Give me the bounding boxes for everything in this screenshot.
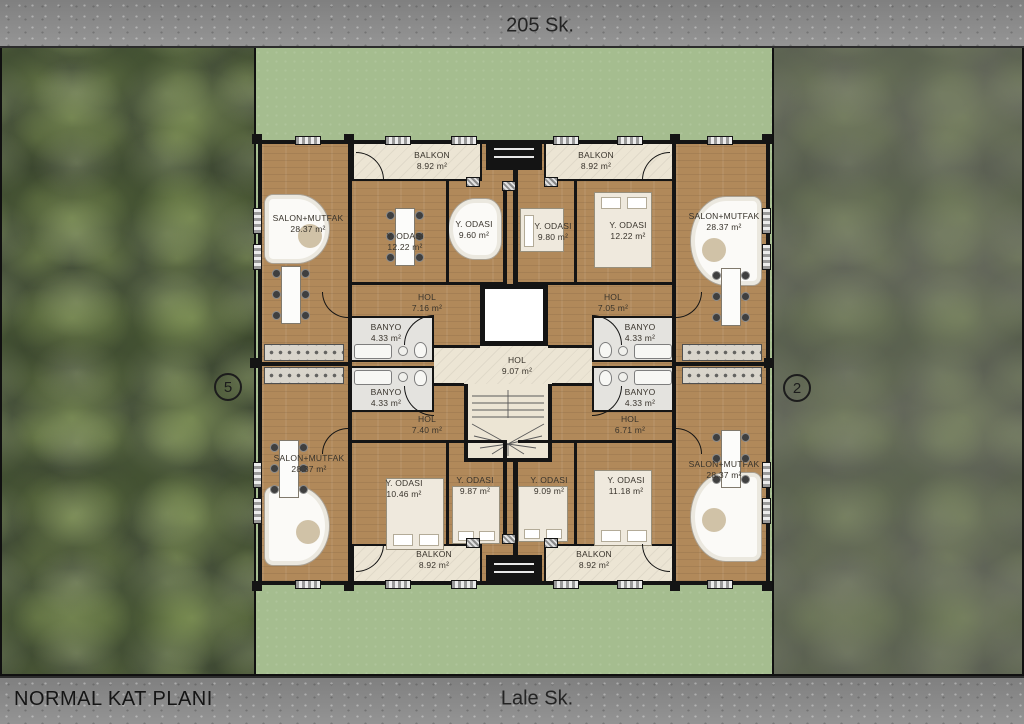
wall <box>574 181 577 284</box>
plot-marker-left: 5 <box>214 373 242 401</box>
room-name: Y. ODASI <box>456 475 493 486</box>
kitchen-counter-top-right <box>682 344 762 361</box>
column-marker <box>762 134 772 144</box>
wall <box>434 383 464 386</box>
window-marker <box>385 580 411 589</box>
wall <box>446 441 449 544</box>
column-marker <box>670 134 680 144</box>
room-area: 7.05 m² <box>598 303 628 314</box>
room-name: Y. ODASI <box>385 478 422 489</box>
wall <box>258 362 350 366</box>
room-label-salon-bottom-right: SALON+MUTFAK28.37 m² <box>689 459 760 481</box>
plot-marker-right: 2 <box>783 374 811 402</box>
dining-table <box>274 264 308 326</box>
room-label-oda-bottom-left-mid: Y. ODASI10.46 m² <box>385 478 422 500</box>
rug <box>296 520 320 544</box>
room-name: Y. ODASI <box>534 221 571 232</box>
toilet <box>414 370 427 386</box>
room-area: 8.92 m² <box>578 161 614 172</box>
room-name: BALKON <box>578 150 614 161</box>
room-name: BANYO <box>625 387 656 398</box>
column-marker <box>670 581 680 591</box>
forest-left <box>0 46 256 676</box>
room-name: SALON+MUTFAK <box>689 211 760 222</box>
room-label-hol-bottom-left: HOL7.40 m² <box>412 414 442 436</box>
wall <box>446 181 449 284</box>
sink <box>618 372 628 382</box>
room-area: 4.33 m² <box>625 333 656 344</box>
window-marker <box>295 136 321 145</box>
room-label-banyo-bottom-right: BANYO4.33 m² <box>625 387 656 409</box>
room-area: 28.37 m² <box>273 224 344 235</box>
room-name: HOL <box>598 292 628 303</box>
window-marker <box>762 244 771 270</box>
room-area: 7.40 m² <box>412 425 442 436</box>
column-marker <box>252 581 262 591</box>
room-label-banyo-bottom-left: BANYO4.33 m² <box>371 387 402 409</box>
room-label-oda-bottom-left-inner: Y. ODASI9.87 m² <box>456 475 493 497</box>
room-label-balkon-bottom-left: BALKON8.92 m² <box>416 549 452 571</box>
room-name: BALKON <box>414 150 450 161</box>
room-name: Y. ODASI <box>455 219 492 230</box>
room-name: SALON+MUTFAK <box>273 213 344 224</box>
room-area: 6.71 m² <box>615 425 645 436</box>
room-name: SALON+MUTFAK <box>274 453 345 464</box>
column-marker <box>252 134 262 144</box>
room-label-oda-top-left-mid: Y. ODASI12.22 m² <box>386 231 423 253</box>
room-label-oda-top-right-mid: Y. ODASI12.22 m² <box>609 220 646 242</box>
room-area: 28.37 m² <box>274 464 345 475</box>
wall <box>350 282 507 285</box>
street-label-bottom: Lale Sk. <box>501 688 573 711</box>
wall <box>552 383 592 386</box>
room-area: 8.92 m² <box>416 560 452 571</box>
kitchen-counter-bottom-left <box>264 367 344 384</box>
room-area: 9.07 m² <box>502 366 532 377</box>
window-marker <box>707 580 733 589</box>
room-area: 9.09 m² <box>530 486 567 497</box>
column-marker <box>344 134 354 144</box>
room-label-hol-top-left: HOL7.16 m² <box>412 292 442 314</box>
window-marker <box>295 580 321 589</box>
wall <box>350 440 507 443</box>
room-area: 4.33 m² <box>625 398 656 409</box>
room-area: 12.22 m² <box>386 242 423 253</box>
window-marker <box>762 498 771 524</box>
room-label-hol-top-right: HOL7.05 m² <box>598 292 628 314</box>
room-area: 10.46 m² <box>385 489 422 500</box>
sink <box>618 346 628 356</box>
plan-title: NORMAL KAT PLANI <box>14 688 213 711</box>
room-area: 4.33 m² <box>371 398 402 409</box>
wall <box>548 345 592 348</box>
room-name: Y. ODASI <box>530 475 567 486</box>
hatched-column <box>544 177 558 187</box>
site-plan-canvas: 205 Sk. Lale Sk. NORMAL KAT PLANI 5 2 <box>0 0 1024 724</box>
room-label-salon-bottom-left: SALON+MUTFAK28.37 m² <box>274 453 345 475</box>
room-name: BALKON <box>576 549 612 560</box>
hatched-column <box>502 181 516 191</box>
kitchen-counter-top-left <box>264 344 344 361</box>
room-area: 4.33 m² <box>371 333 402 344</box>
room-area: 28.37 m² <box>689 222 760 233</box>
room-label-hol-bottom-right: HOL6.71 m² <box>615 414 645 436</box>
window-marker <box>253 498 262 524</box>
window-marker <box>451 136 477 145</box>
window-marker <box>762 462 771 488</box>
hatched-column <box>502 534 516 544</box>
room-area: 12.22 m² <box>609 231 646 242</box>
room-area: 9.87 m² <box>456 486 493 497</box>
window-marker <box>553 136 579 145</box>
window-marker <box>617 136 643 145</box>
window-marker <box>762 208 771 234</box>
room-name: HOL <box>502 355 532 366</box>
room-name: BANYO <box>371 322 402 333</box>
sink <box>398 346 408 356</box>
shaft-block-top <box>486 140 542 170</box>
room-name: Y. ODASI <box>607 475 644 486</box>
room-label-banyo-top-left: BANYO4.33 m² <box>371 322 402 344</box>
room-name: HOL <box>615 414 645 425</box>
column-marker <box>344 581 354 591</box>
room-name: BANYO <box>371 387 402 398</box>
wall <box>574 441 577 544</box>
room-area: 28.37 m² <box>689 470 760 481</box>
room-name: BALKON <box>416 549 452 560</box>
wall <box>434 345 480 348</box>
room-label-oda-bottom-right-inner: Y. ODASI9.09 m² <box>530 475 567 497</box>
room-name: Y. ODASI <box>609 220 646 231</box>
column-marker <box>764 358 774 368</box>
room-label-banyo-top-right: BANYO4.33 m² <box>625 322 656 344</box>
room-label-oda-bottom-right-mid: Y. ODASI11.18 m² <box>607 475 644 497</box>
window-marker <box>553 580 579 589</box>
wall <box>503 441 507 544</box>
wall <box>503 181 507 284</box>
rug <box>702 508 726 532</box>
hatched-column <box>466 177 480 187</box>
room-area: 7.16 m² <box>412 303 442 314</box>
elevator <box>480 284 548 346</box>
room-label-balkon-bottom-right: BALKON8.92 m² <box>576 549 612 571</box>
room-area: 8.92 m² <box>414 161 450 172</box>
sink <box>398 372 408 382</box>
window-marker <box>707 136 733 145</box>
room-label-hol-center: HOL9.07 m² <box>502 355 532 377</box>
stairs <box>468 388 548 458</box>
room-label-salon-top-right: SALON+MUTFAK28.37 m² <box>689 211 760 233</box>
bathtub <box>634 370 672 385</box>
window-marker <box>451 580 477 589</box>
kitchen-counter-bottom-right <box>682 367 762 384</box>
wall <box>518 282 674 285</box>
room-area: 9.60 m² <box>455 230 492 241</box>
room-label-balkon-top-right: BALKON8.92 m² <box>578 150 614 172</box>
window-marker <box>385 136 411 145</box>
room-area: 8.92 m² <box>576 560 612 571</box>
window-marker <box>253 462 262 488</box>
room-name: HOL <box>412 292 442 303</box>
bathtub <box>634 344 672 359</box>
dining-table <box>714 266 748 328</box>
room-name: Y. ODASI <box>386 231 423 242</box>
bathtub <box>354 370 392 385</box>
hatched-column <box>544 538 558 548</box>
shaft-block-bottom <box>486 555 542 585</box>
wall <box>676 362 770 366</box>
room-label-salon-top-left: SALON+MUTFAK28.37 m² <box>273 213 344 235</box>
room-name: SALON+MUTFAK <box>689 459 760 470</box>
room-name: HOL <box>412 414 442 425</box>
room-name: BANYO <box>625 322 656 333</box>
window-marker <box>253 244 262 270</box>
window-marker <box>617 580 643 589</box>
street-label-top: 205 Sk. <box>506 15 574 38</box>
room-label-balkon-top-left: BALKON8.92 m² <box>414 150 450 172</box>
forest-right <box>772 46 1024 676</box>
wall <box>518 440 674 443</box>
elevator-door <box>508 341 520 345</box>
room-area: 9.80 m² <box>534 232 571 243</box>
room-label-oda-top-left-inner: Y. ODASI9.60 m² <box>455 219 492 241</box>
column-marker <box>762 581 772 591</box>
toilet <box>599 370 612 386</box>
rug <box>702 238 726 262</box>
window-marker <box>253 208 262 234</box>
hatched-column <box>466 538 480 548</box>
room-area: 11.18 m² <box>607 486 644 497</box>
room-label-oda-top-right-inner: Y. ODASI9.80 m² <box>534 221 571 243</box>
column-marker <box>250 358 260 368</box>
bathtub <box>354 344 392 359</box>
